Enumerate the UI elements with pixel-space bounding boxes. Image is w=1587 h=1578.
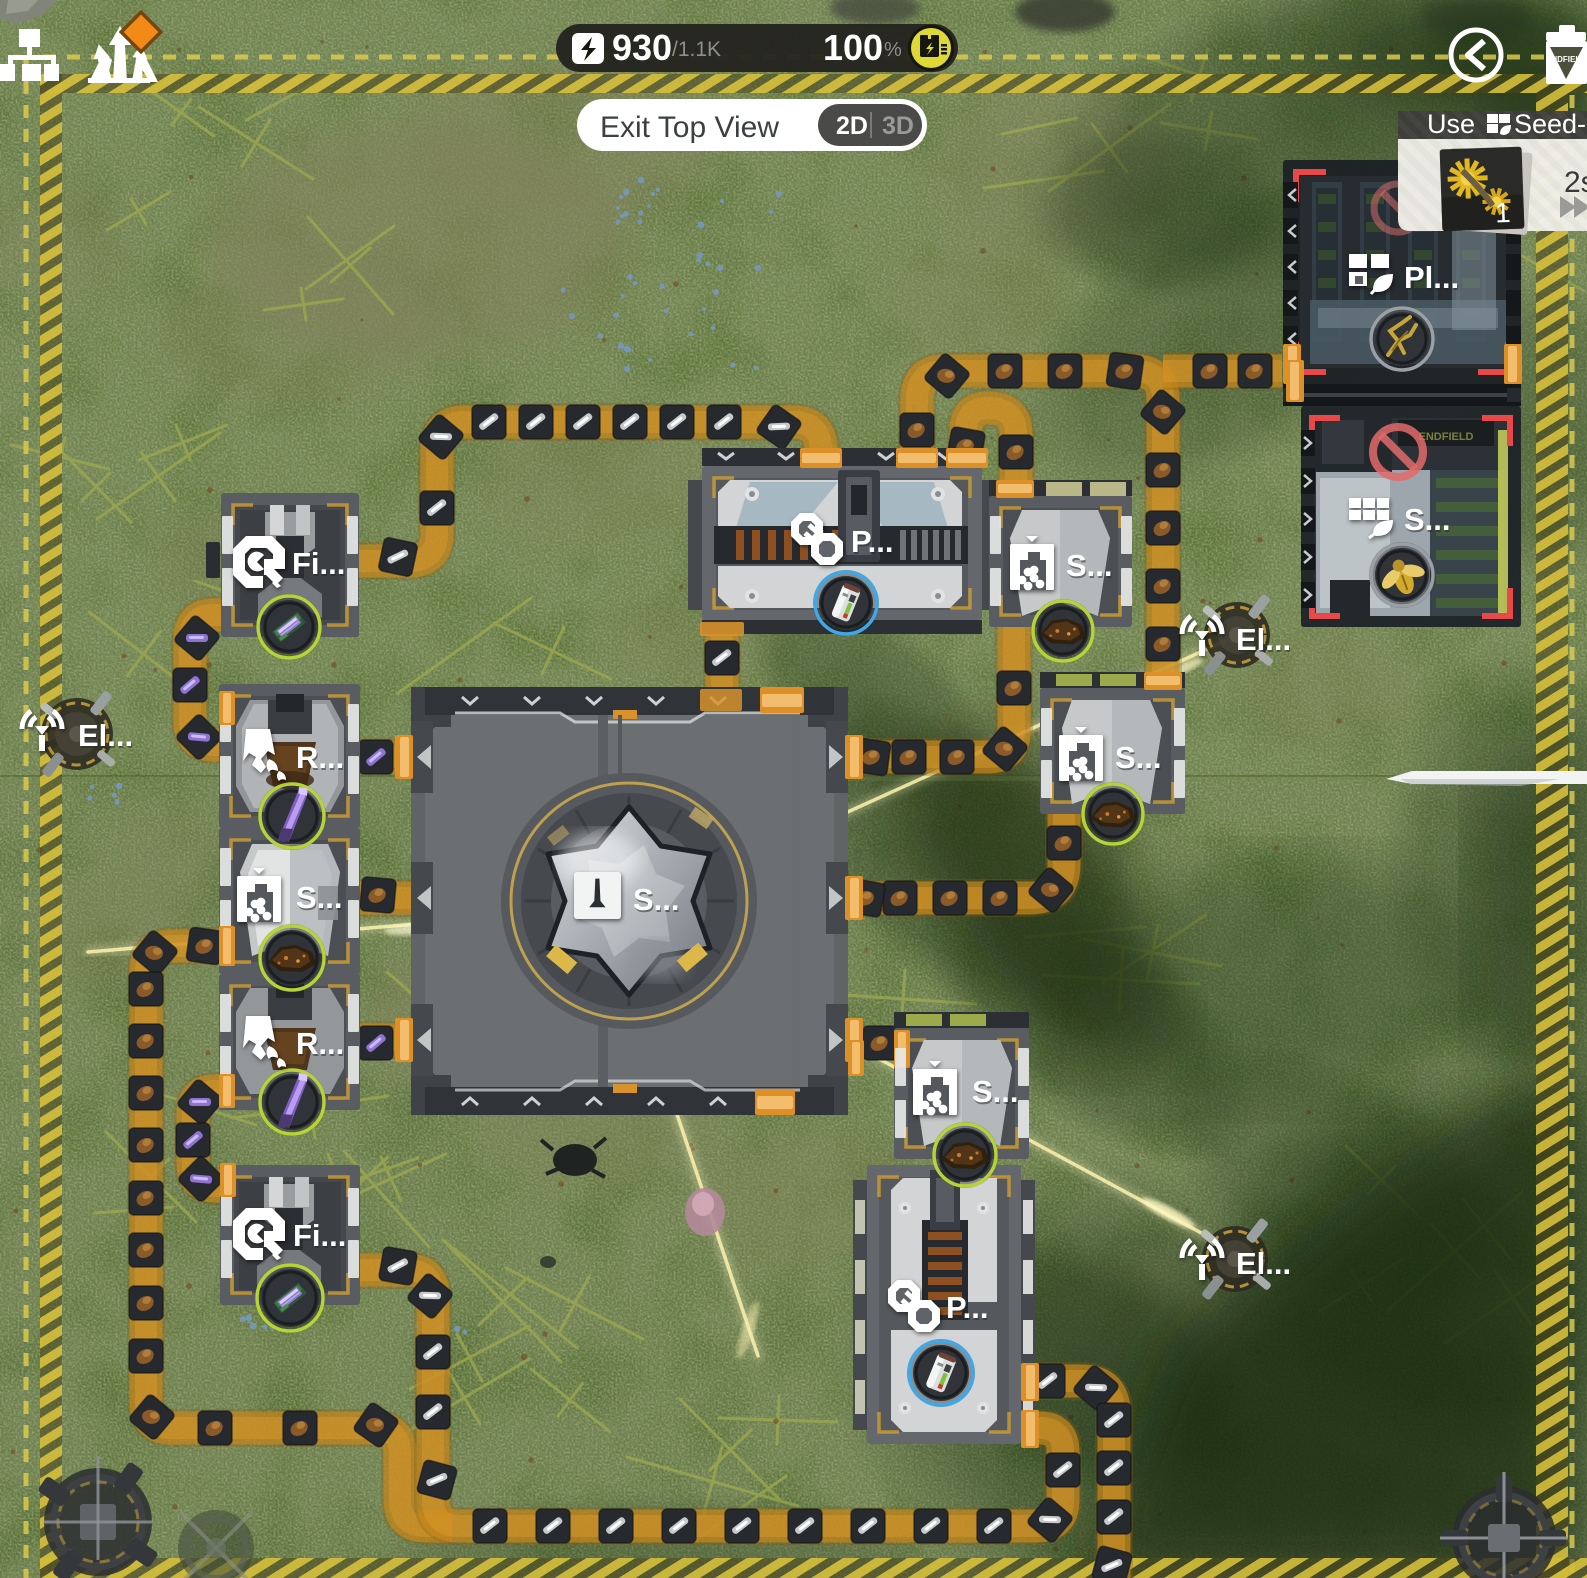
svg-text:Use: Use [1427,109,1475,139]
svg-text:2D: 2D [836,112,868,140]
svg-text:Pl...: Pl... [1404,260,1459,295]
svg-text:2s: 2s [1564,166,1587,199]
svg-text:1: 1 [1495,197,1512,229]
svg-text:S...: S... [1066,548,1113,583]
svg-text:P...: P... [946,1290,989,1325]
svg-text:S...: S... [1404,502,1451,537]
svg-text:%: % [884,39,902,61]
svg-text:3D: 3D [882,112,914,140]
svg-text:El...: El... [78,718,133,753]
svg-text:S...: S... [296,880,343,915]
svg-text:R...: R... [296,1026,344,1061]
svg-text:100: 100 [823,27,883,68]
svg-text:S...: S... [633,882,680,917]
svg-text:Fi...: Fi... [293,1218,346,1253]
svg-text:930: 930 [612,27,672,68]
svg-text:R...: R... [296,740,344,775]
svg-text:Exit Top View: Exit Top View [600,111,779,144]
svg-text:El...: El... [1236,1246,1291,1281]
svg-text:El...: El... [1236,622,1291,657]
svg-text:/1.1K: /1.1K [672,38,721,61]
svg-text:Seed-P: Seed-P [1514,109,1587,139]
svg-text:ENDFIELD: ENDFIELD [1546,55,1586,64]
svg-text:ENDFIELD: ENDFIELD [1419,431,1474,443]
svg-text:S...: S... [1115,740,1162,775]
svg-text:Fi...: Fi... [292,546,345,581]
svg-text:S...: S... [972,1074,1019,1109]
svg-text:P...: P... [851,524,894,559]
